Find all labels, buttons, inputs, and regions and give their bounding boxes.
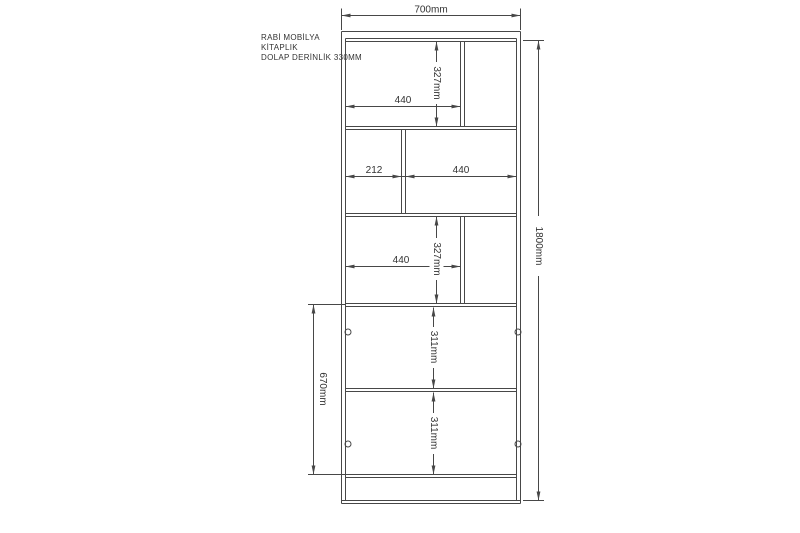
dim-third-shelf-width-label: 440 xyxy=(393,255,410,266)
dim-overall-width-label: 700mm xyxy=(414,5,447,16)
dim-second-shelf-left-width-label: 212 xyxy=(366,165,383,176)
dim-door-column-height-label: 670mm xyxy=(317,372,328,405)
shelf-1 xyxy=(346,127,517,130)
dim-top-shelf-height-label: 327mm xyxy=(431,66,442,99)
dim-lower-door-height-label: 311mm xyxy=(428,417,439,450)
divider-third-section xyxy=(461,217,465,304)
dim-top-shelf-height: 327mm xyxy=(430,42,444,127)
dim-overall-height-label: 1800mm xyxy=(533,227,544,266)
shelf-3 xyxy=(346,304,517,307)
divider-second-section xyxy=(402,130,406,214)
dim-second-shelf-widths: 212 440 xyxy=(346,165,517,178)
dim-second-shelf-right-width-label: 440 xyxy=(453,165,470,176)
dim-door-column-height: 670mm xyxy=(308,305,345,475)
dim-lower-door-height: 311mm xyxy=(427,393,441,475)
dim-upper-door-height: 311mm xyxy=(427,308,441,389)
shelf-2 xyxy=(346,214,517,217)
dim-upper-door-height-label: 311mm xyxy=(428,331,439,364)
dim-third-shelf-height: 327mm xyxy=(430,217,444,304)
shelf-5 xyxy=(346,475,517,478)
dim-overall-height: 1800mm xyxy=(523,41,546,501)
drawing-canvas: RABİ MOBİLYA KİTAPLIK DOLAP DERİNLİK 330… xyxy=(0,0,800,533)
divider-top-section xyxy=(461,42,465,127)
shelf-4 xyxy=(346,389,517,392)
dim-top-shelf-width-label: 440 xyxy=(395,95,412,106)
dim-third-shelf-height-label: 327mm xyxy=(431,242,442,275)
bookcase-technical-drawing: 700mm 1800mm 670mm 440 xyxy=(0,0,800,533)
dim-overall-width: 700mm xyxy=(342,5,521,31)
